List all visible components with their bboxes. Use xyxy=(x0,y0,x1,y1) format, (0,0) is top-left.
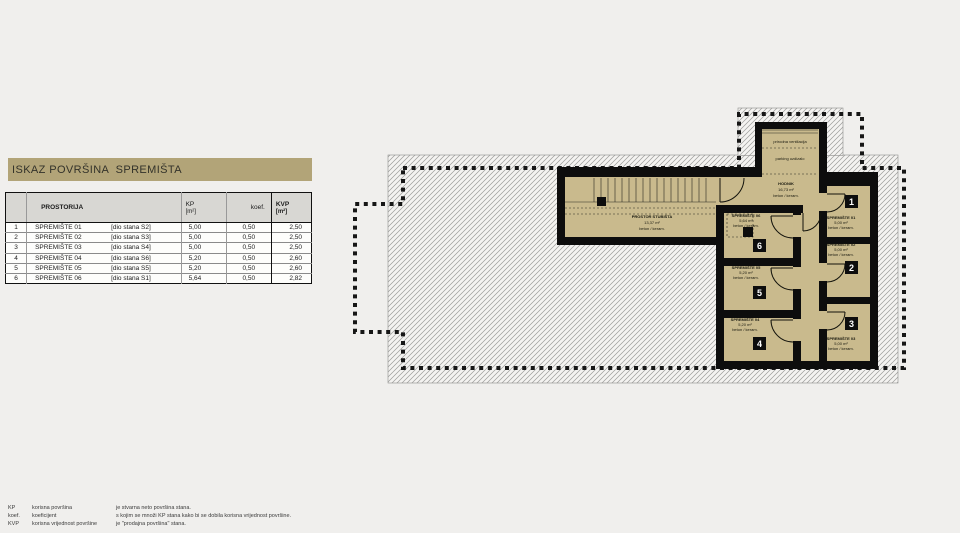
page-title: ISKAZ POVRŠINA SPREMIŠTA xyxy=(8,158,312,181)
svg-text:prirodna ventilacija: prirodna ventilacija xyxy=(773,139,807,144)
header-kp: KP[m²] xyxy=(181,193,226,223)
svg-text:beton / keram.: beton / keram. xyxy=(639,226,665,231)
legend-row: KPkorisna površinaje stvarna neto površi… xyxy=(8,504,291,512)
svg-text:5: 5 xyxy=(757,288,762,298)
svg-text:1: 1 xyxy=(849,197,854,207)
table-row: 6 SPREMIŠTE 06[dio stana S1] 5,64 0,50 2… xyxy=(6,273,312,283)
area-table: PROSTORIJA KP[m²] koef. KVP[m²] 1 SPREMI… xyxy=(5,192,312,284)
svg-text:4: 4 xyxy=(757,339,762,349)
svg-text:beton / keram.: beton / keram. xyxy=(773,193,799,198)
header-koef: koef. xyxy=(226,193,271,223)
svg-text:13,37 m²: 13,37 m² xyxy=(644,220,660,225)
abbreviation-legend: KPkorisna površinaje stvarna neto površi… xyxy=(8,504,291,528)
svg-text:beton / keram.: beton / keram. xyxy=(828,225,854,230)
table-row: 4 SPREMIŠTE 04[dio stana S6] 5,20 0,50 2… xyxy=(6,253,312,263)
table-row: 5 SPREMIŠTE 05[dio stana S5] 5,20 0,50 2… xyxy=(6,263,312,273)
header-kvp: KVP[m²] xyxy=(271,193,311,223)
duct-marker xyxy=(743,227,753,237)
svg-text:16,73 m²: 16,73 m² xyxy=(778,187,794,192)
svg-text:beton / keram.: beton / keram. xyxy=(828,346,854,351)
floor-plan: PROSTOR STUBIŠTA 13,37 m² beton / keram.… xyxy=(340,100,960,400)
header-num xyxy=(6,193,27,223)
legend-row: KVPkorisna vrijednost površineje "prodaj… xyxy=(8,520,291,528)
svg-text:2: 2 xyxy=(849,263,854,273)
table-header-row: PROSTORIJA KP[m²] koef. KVP[m²] xyxy=(6,193,312,223)
header-prostorija: PROSTORIJA xyxy=(27,193,182,223)
svg-text:PROSTOR STUBIŠTA: PROSTOR STUBIŠTA xyxy=(632,214,673,219)
table-row: 1 SPREMIŠTE 01[dio stana S2] 5,00 0,50 2… xyxy=(6,223,312,233)
svg-text:6: 6 xyxy=(757,241,762,251)
svg-text:beton / keram.: beton / keram. xyxy=(732,327,758,332)
svg-text:3: 3 xyxy=(849,319,854,329)
legend-row: koef.koeficijents kojim se množi KP stan… xyxy=(8,512,291,520)
svg-text:beton / keram.: beton / keram. xyxy=(733,223,759,228)
table-row: 2 SPREMIŠTE 02[dio stana S3] 5,00 0,50 2… xyxy=(6,233,312,243)
svg-text:parking uzdizalo: parking uzdizalo xyxy=(776,156,806,161)
svg-text:beton / keram.: beton / keram. xyxy=(733,275,759,280)
svg-text:HODNIK: HODNIK xyxy=(778,181,794,186)
svg-text:beton / keram.: beton / keram. xyxy=(828,252,854,257)
stair-direction-marker xyxy=(597,197,606,206)
table-row: 3 SPREMIŠTE 03[dio stana S4] 5,00 0,50 2… xyxy=(6,243,312,253)
